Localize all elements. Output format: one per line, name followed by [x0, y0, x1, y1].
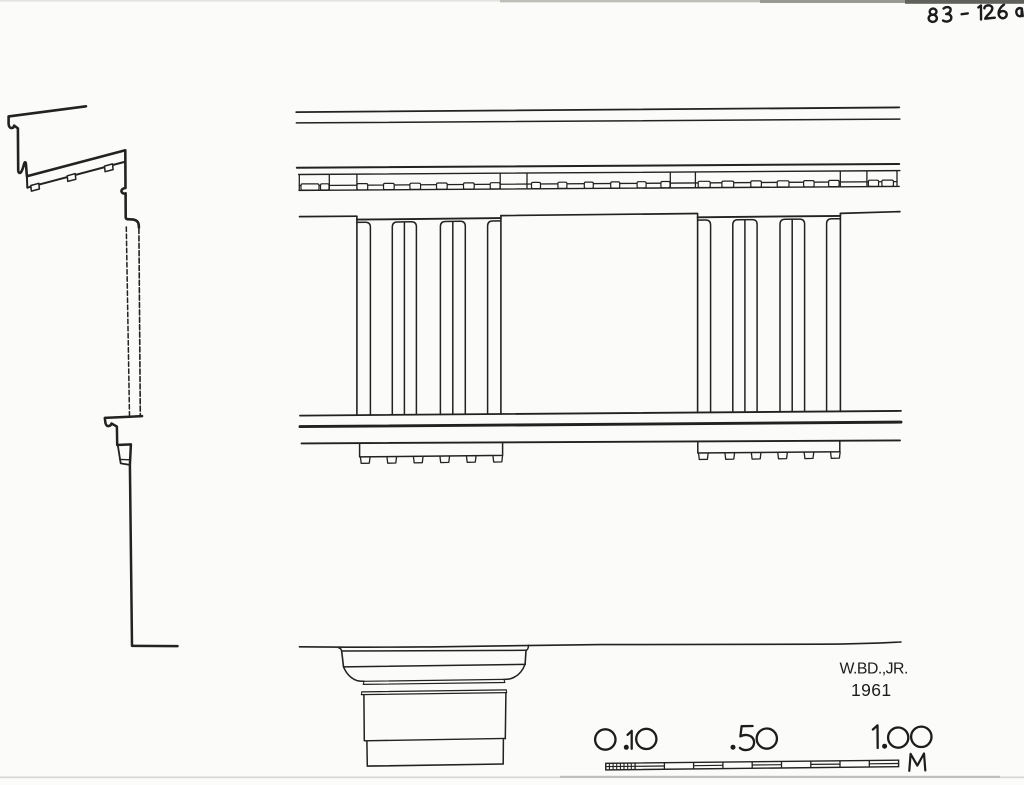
svg-text:W.BD.,JR.: W.BD.,JR.: [840, 661, 908, 678]
svg-text:1961: 1961: [851, 680, 892, 700]
